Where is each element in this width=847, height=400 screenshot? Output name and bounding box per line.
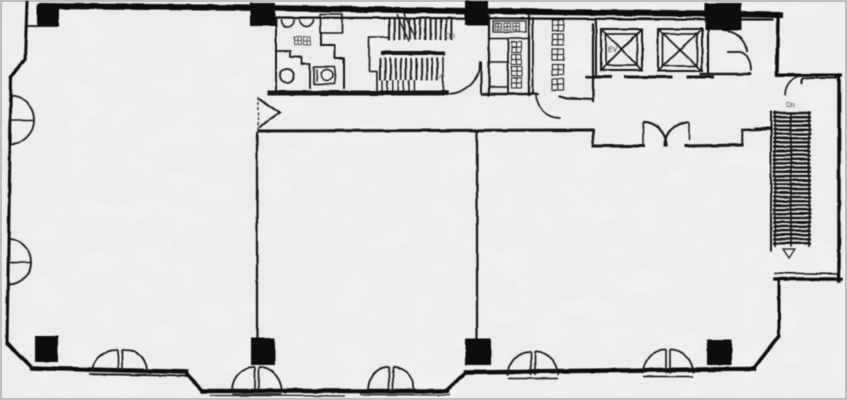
- svg-text:UP: UP: [437, 74, 445, 80]
- svg-text:Dn: Dn: [446, 33, 455, 40]
- svg-text:Dn: Dn: [786, 102, 795, 109]
- svg-text:EV: EV: [608, 47, 618, 54]
